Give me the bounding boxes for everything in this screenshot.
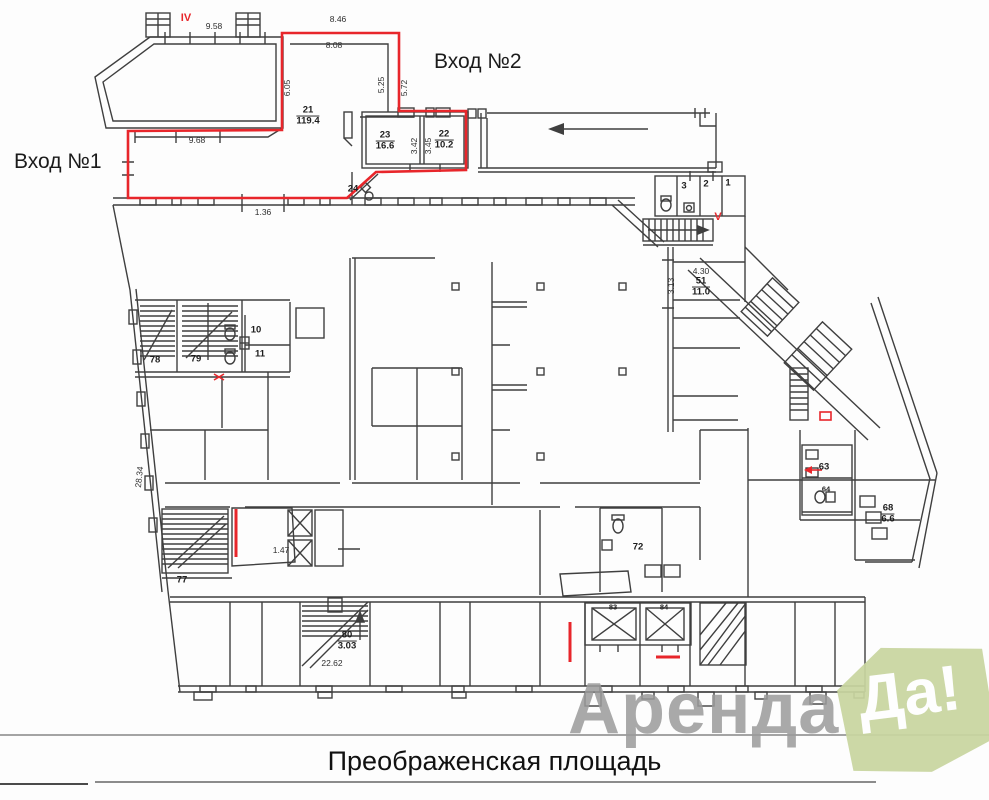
chimney-icon	[146, 13, 260, 37]
elevator-icon-left	[288, 510, 343, 566]
staircase-77	[162, 509, 232, 578]
staircase-bottom-right	[700, 603, 746, 665]
arrow-icon	[548, 123, 648, 135]
toilet-icon-72	[602, 515, 624, 550]
elevator-icon-83-84	[585, 603, 691, 652]
entrance-2-label: Вход №2	[434, 50, 522, 74]
entrance-1-label: Вход №1	[14, 150, 102, 174]
floorplan-drawing	[0, 0, 989, 800]
room24-fixtures	[350, 174, 378, 200]
column-grid	[452, 283, 626, 460]
staircase-80	[302, 598, 368, 668]
staircase-78	[140, 306, 175, 360]
floorplan-page: Аренда Да! Вход №1 Вход №2 Преображенска…	[0, 0, 989, 800]
window-icons-bottom	[200, 686, 822, 692]
address-caption: Преображенская площадь	[0, 746, 989, 777]
room68-steps	[860, 496, 887, 539]
red-rect-right	[820, 412, 831, 420]
walls	[95, 13, 937, 706]
escalators	[688, 247, 937, 479]
parapet-bumps	[194, 692, 864, 706]
